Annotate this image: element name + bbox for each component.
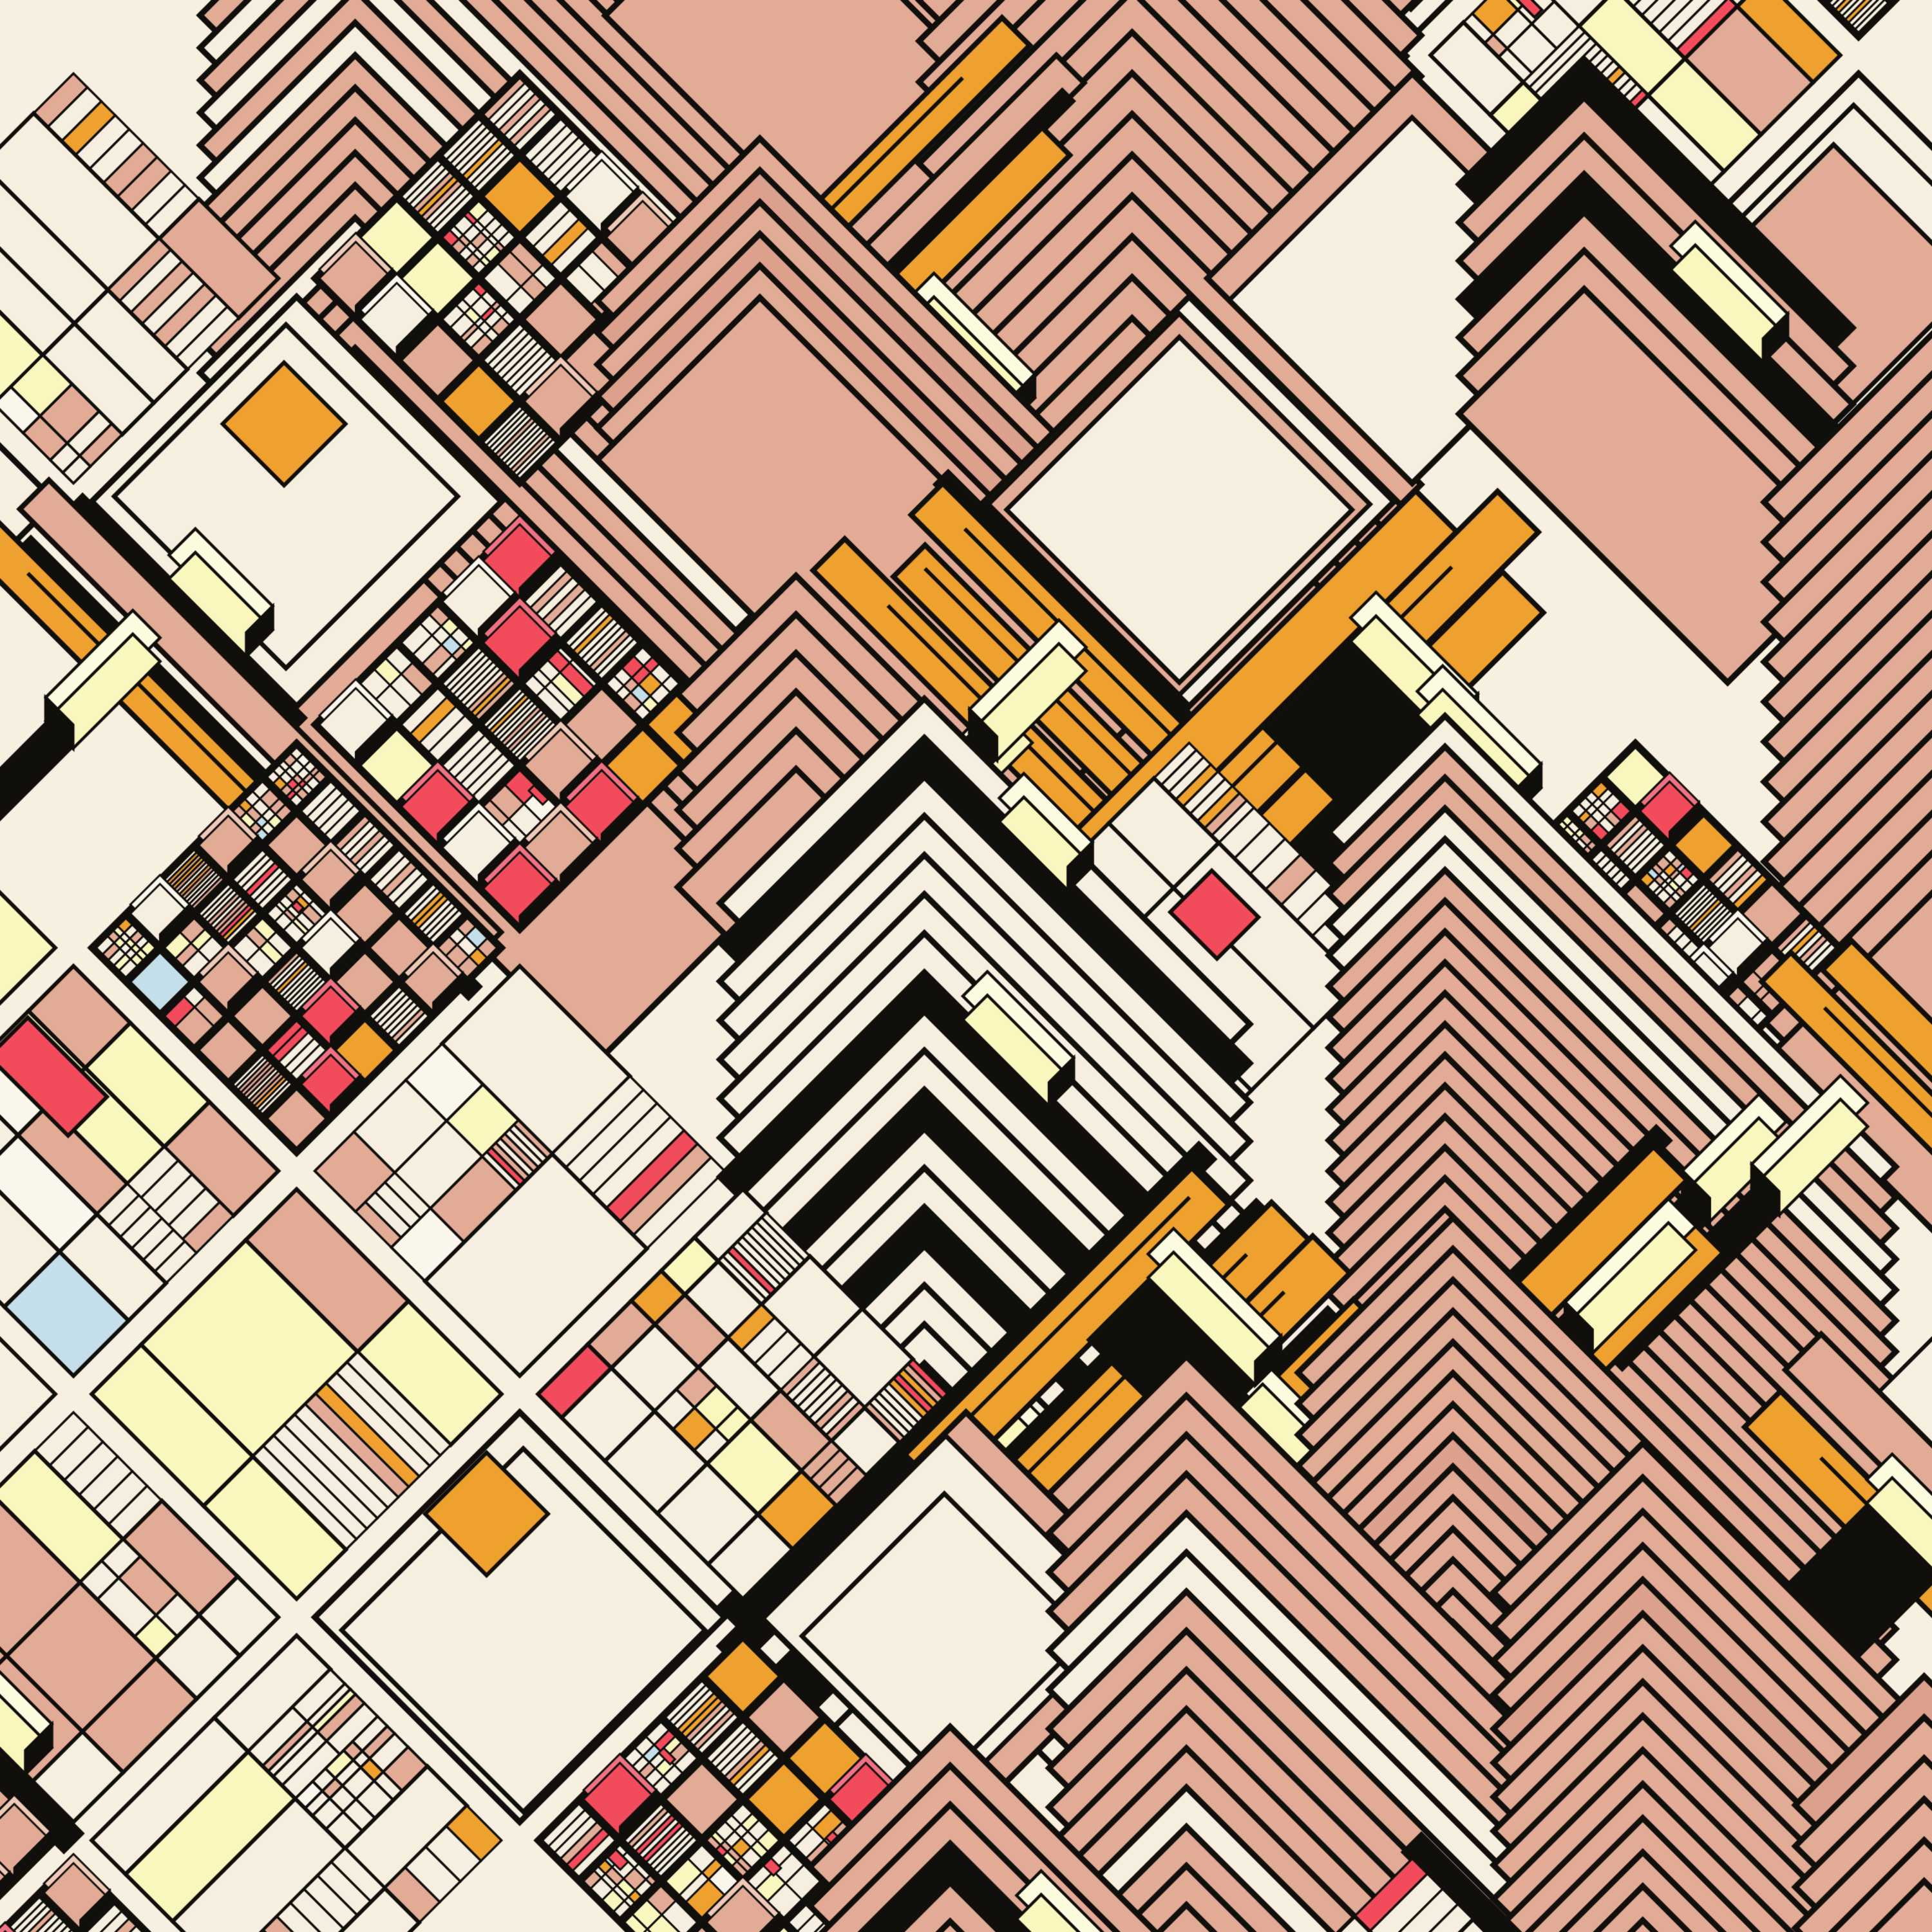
generative-artwork [0,0,1932,1932]
artwork-canvas [0,0,1932,1932]
